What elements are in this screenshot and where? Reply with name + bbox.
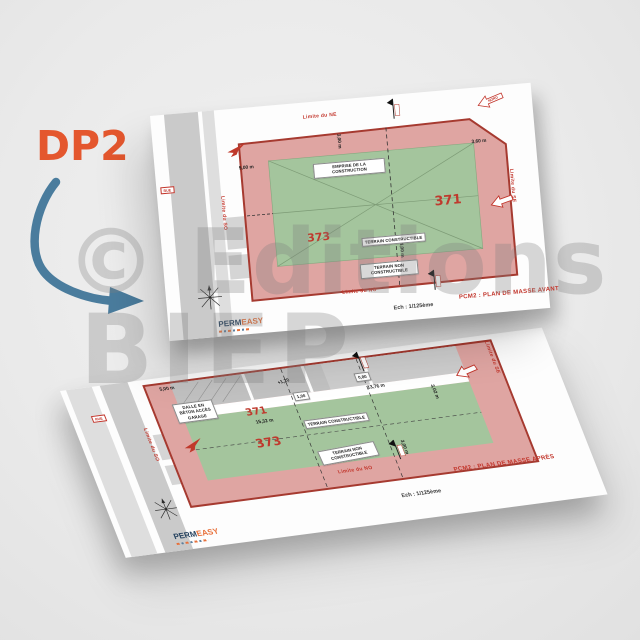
road-label: RUE [160,186,174,194]
permeasy-logo: PERMEASY [218,317,264,332]
plan-sheet-avant: RUE Limite du NE Limite du SE Limite du … [150,83,550,341]
curved-arrow-icon [18,170,168,320]
logo-text-right: EASY [241,316,263,327]
logo-text-left: PERM [172,530,198,542]
parcel-number-373: 373 [307,231,331,244]
boundary-flag-icon [426,267,442,292]
dp2-label: DP2 [36,122,129,170]
scale-label: Ech : 1/125ème [393,302,433,311]
limit-label-ne: Limite du NE [302,112,337,121]
logo-tagline [219,328,251,333]
scale-label: Ech : 1/125ème [401,488,443,499]
logo-text-left: PERM [218,318,242,329]
logo-text-right: EASY [195,527,220,538]
parcel-number-371: 371 [434,193,462,208]
dimension-100: 1,00 [292,391,310,402]
poster-scene: DP2 RUE Limite du NE Limite du SE Limite… [0,0,640,640]
compass-rose-icon [197,284,223,310]
boundary-flag-icon [385,96,401,121]
parcel-number-373: 373 [254,435,283,450]
access-arrow-icon [225,142,248,159]
plan-sheet-apres: RUE 5,00 m DALLE EN BÉTON ACCÈS GARAGE +… [60,328,608,558]
